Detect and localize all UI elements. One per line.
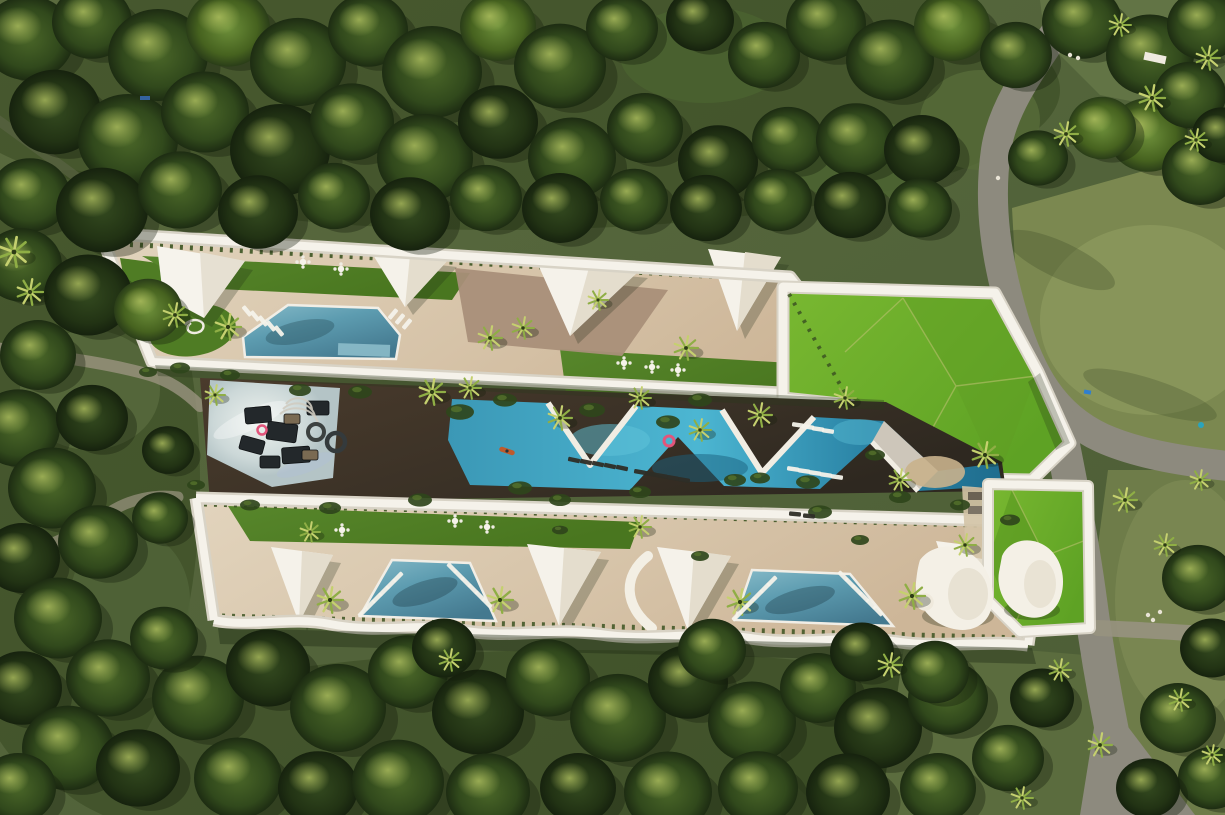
blob-pavilion-1-shade	[948, 568, 988, 620]
site-plan-render	[0, 0, 1225, 815]
blob-pavilion-2-shade	[1024, 560, 1056, 608]
daybed	[244, 406, 271, 424]
rooftop-vent	[968, 492, 982, 500]
blue-tarp	[140, 96, 150, 100]
daybed	[260, 456, 280, 468]
aerial-site-plan	[0, 0, 1225, 815]
lower-residence-roof	[196, 498, 1040, 645]
side-table	[302, 450, 318, 460]
side-table	[284, 414, 300, 424]
teal-object	[1198, 422, 1204, 428]
pool-tanning-shelf	[338, 343, 390, 357]
rooftop-vent	[968, 506, 982, 514]
